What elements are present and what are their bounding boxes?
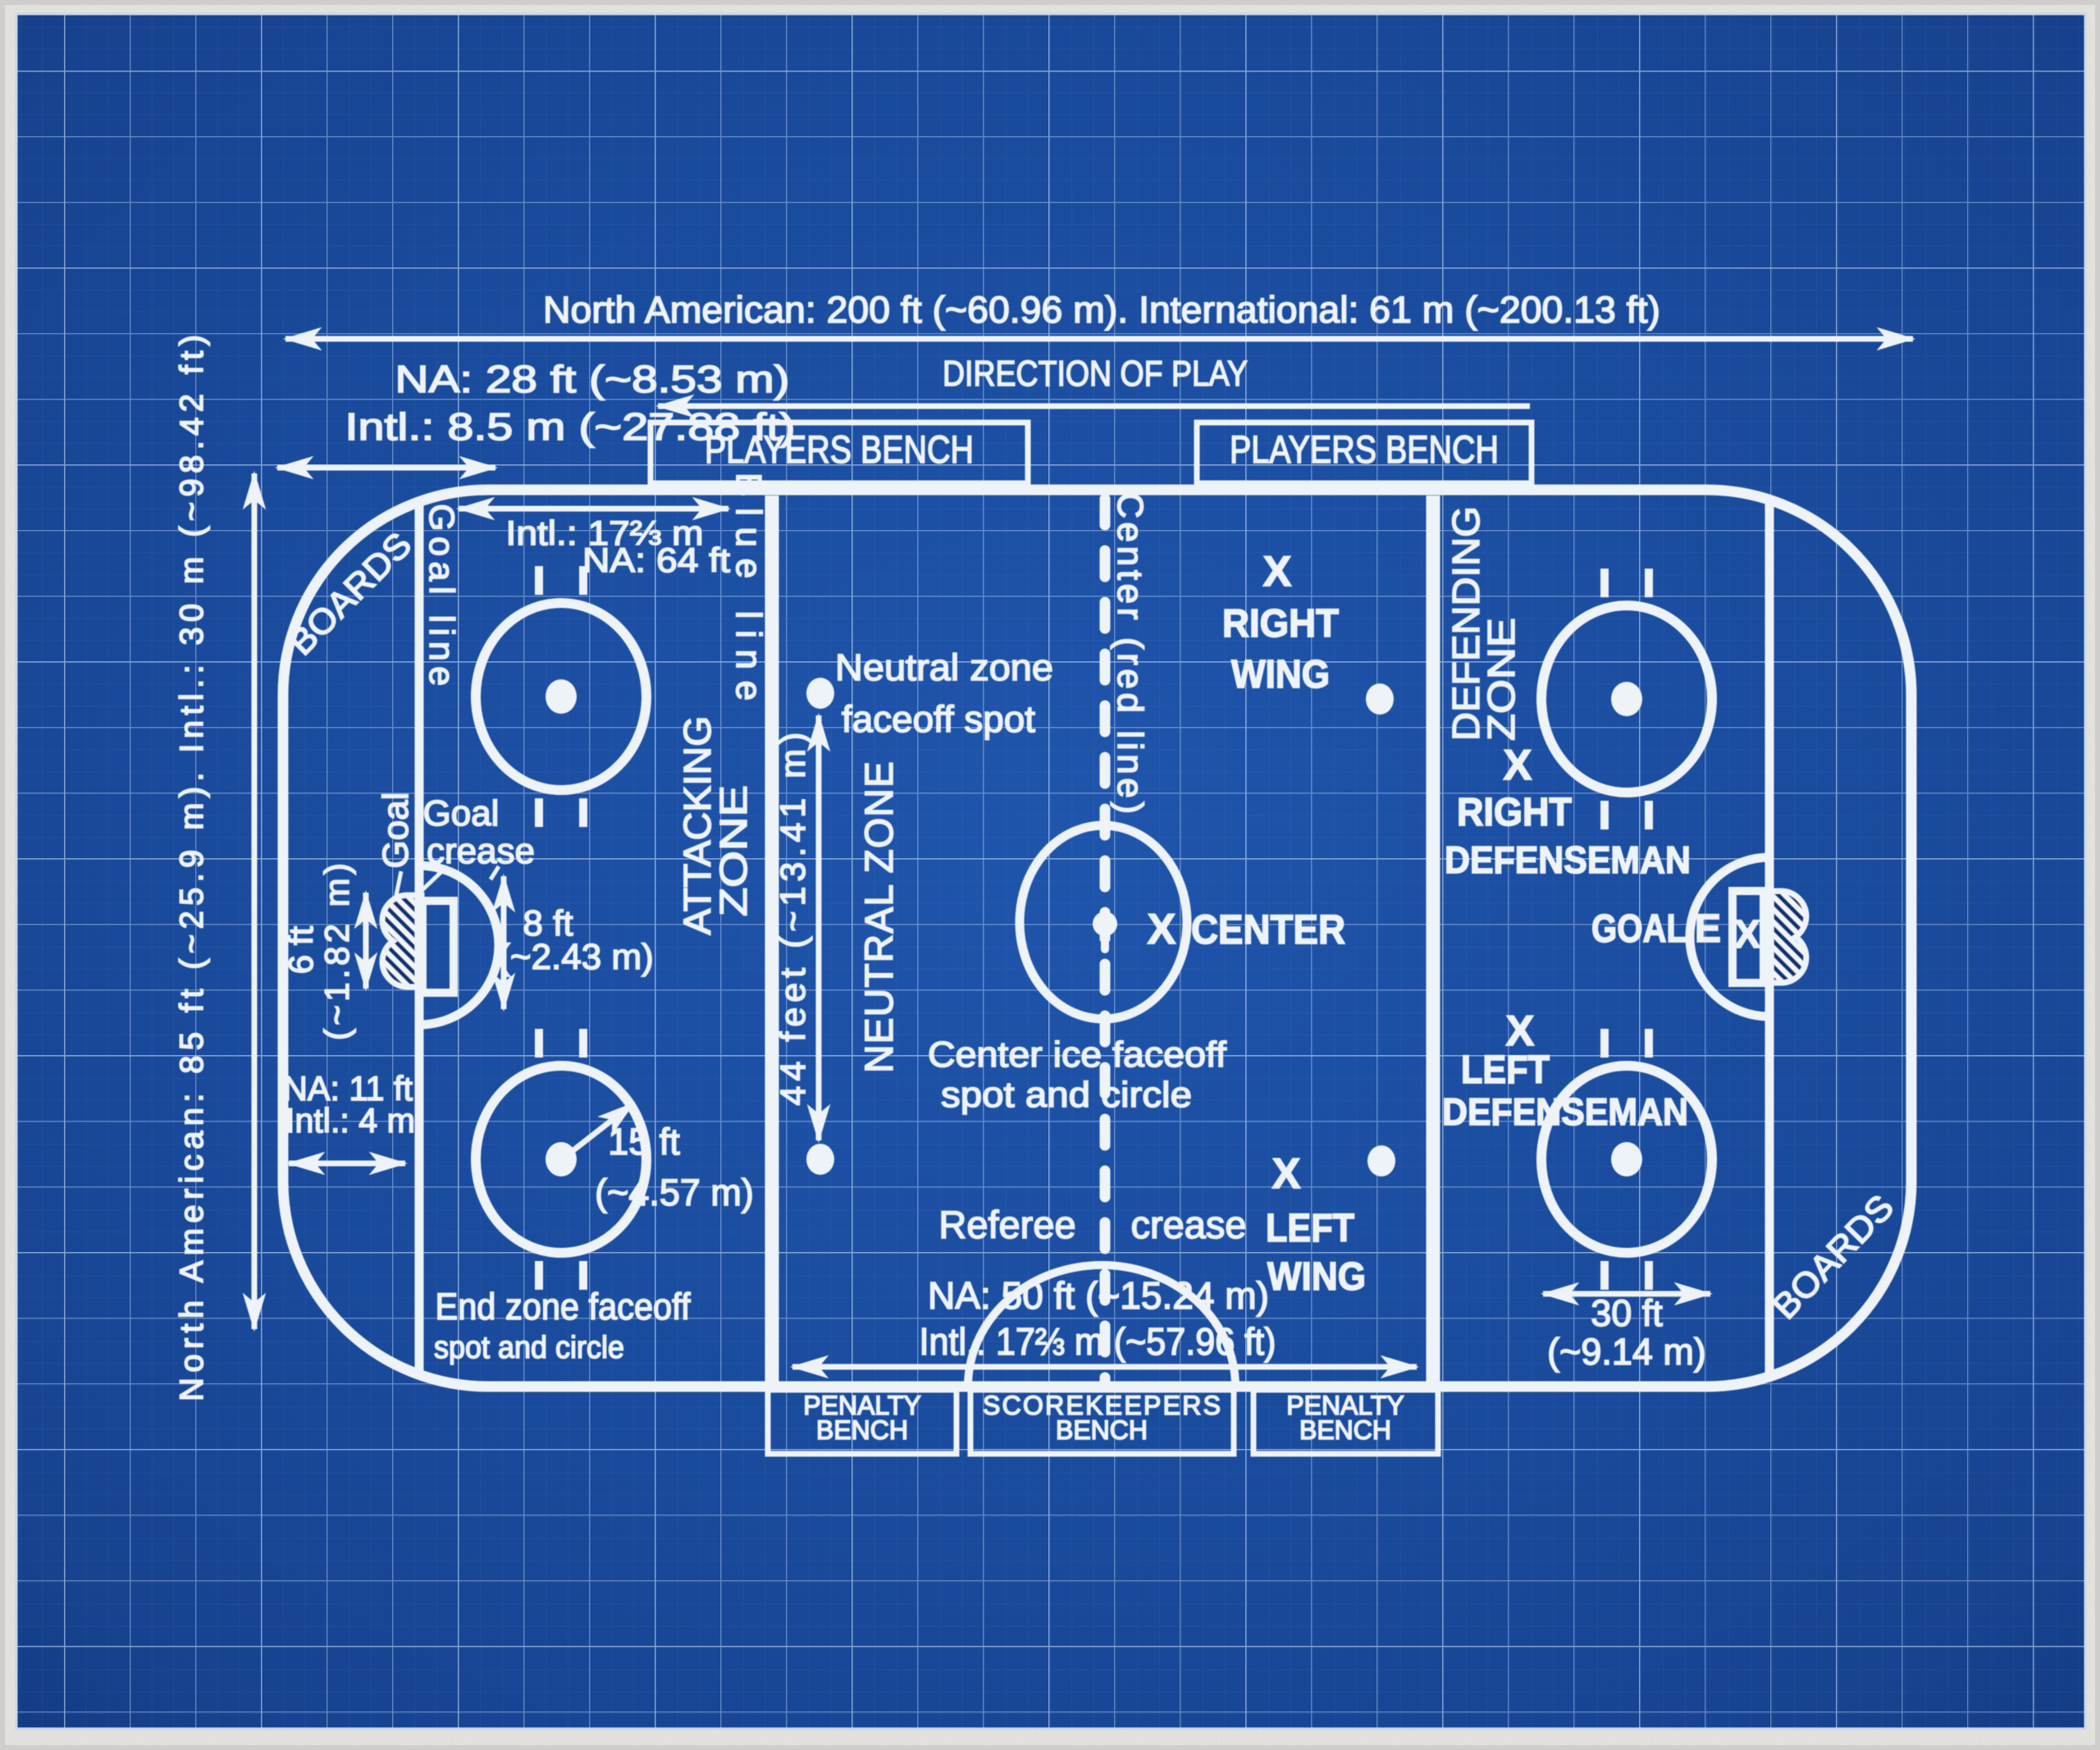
svg-text:LEFT: LEFT	[1461, 1049, 1550, 1092]
svg-text:CENTER: CENTER	[1191, 907, 1345, 953]
svg-text:End zone faceoff: End zone faceoff	[436, 1286, 691, 1327]
svg-text:faceoff spot: faceoff spot	[842, 698, 1035, 740]
svg-text:North American: 200 ft (~60.96: North American: 200 ft (~60.96 m). Inter…	[543, 289, 1660, 331]
svg-text:Goal: Goal	[376, 793, 416, 869]
svg-text:Referee: Referee	[938, 1203, 1075, 1246]
svg-text:LEFT: LEFT	[1266, 1207, 1354, 1250]
svg-text:X: X	[1272, 1150, 1301, 1198]
svg-text:BENCH: BENCH	[1056, 1415, 1148, 1445]
svg-text:crease: crease	[427, 831, 535, 871]
svg-text:Center ice faceoff: Center ice faceoff	[928, 1035, 1227, 1075]
svg-text:spot and circle: spot and circle	[434, 1331, 624, 1365]
svg-text:15 ft: 15 ft	[608, 1121, 680, 1163]
svg-text:DEFENSEMAN: DEFENSEMAN	[1442, 1090, 1688, 1133]
svg-text:ZONE: ZONE	[1480, 618, 1522, 741]
svg-text:Intl.: 17⅔ m (~57.96 ft): Intl.: 17⅔ m (~57.96 ft)	[920, 1320, 1276, 1363]
svg-text:NA: 28 ft (~8.53 m): NA: 28 ft (~8.53 m)	[395, 358, 790, 400]
svg-text:44 feet (~13.41 m): 44 feet (~13.41 m)	[774, 733, 813, 1106]
svg-text:NA: 64 ft: NA: 64 ft	[582, 541, 730, 579]
svg-text:Goal: Goal	[423, 793, 500, 834]
svg-text:PLAYERS BENCH: PLAYERS BENCH	[1230, 427, 1499, 471]
svg-text:DEFENSEMAN: DEFENSEMAN	[1445, 838, 1691, 881]
svg-text:GOAL: GOAL	[1591, 907, 1687, 951]
svg-text:NEUTRAL ZONE: NEUTRAL ZONE	[858, 761, 902, 1073]
svg-text:PLAYERS BENCH: PLAYERS BENCH	[705, 427, 974, 471]
svg-text:Center (red line): Center (red line)	[1110, 492, 1150, 814]
svg-text:North American: 85 ft (~25.9 m: North American: 85 ft (~25.9 m). Intl.: …	[174, 335, 210, 1401]
svg-text:Neutral zone: Neutral zone	[835, 647, 1053, 688]
svg-text:6 ft: 6 ft	[281, 925, 320, 974]
svg-text:ZONE: ZONE	[712, 785, 755, 916]
svg-text:RIGHT: RIGHT	[1222, 602, 1339, 646]
svg-text:(~4.57 m): (~4.57 m)	[595, 1172, 754, 1213]
svg-text:E: E	[1695, 907, 1721, 951]
svg-text:DIRECTION OF PLAY: DIRECTION OF PLAY	[943, 354, 1248, 394]
svg-text:X: X	[1734, 913, 1760, 957]
svg-text:WING: WING	[1267, 1255, 1366, 1299]
svg-text:crease: crease	[1130, 1203, 1246, 1246]
svg-text:(~2.43 m): (~2.43 m)	[498, 937, 654, 977]
svg-text:spot and circle: spot and circle	[941, 1075, 1192, 1115]
svg-text:X: X	[1148, 906, 1176, 953]
svg-text:RIGHT: RIGHT	[1457, 791, 1572, 834]
svg-text:30 ft: 30 ft	[1591, 1292, 1663, 1334]
svg-text:Intl.: 4 m: Intl.: 4 m	[285, 1101, 415, 1140]
svg-text:(~9.14 m): (~9.14 m)	[1547, 1331, 1706, 1373]
svg-text:X: X	[1504, 742, 1532, 789]
svg-text:BENCH: BENCH	[816, 1415, 908, 1445]
svg-text:BENCH: BENCH	[1299, 1415, 1391, 1445]
svg-text:WING: WING	[1231, 653, 1330, 697]
svg-text:NA: 50 ft (~15.24 m): NA: 50 ft (~15.24 m)	[928, 1274, 1269, 1317]
svg-text:(~1.82 m): (~1.82 m)	[317, 863, 356, 1040]
svg-text:X: X	[1263, 548, 1292, 596]
